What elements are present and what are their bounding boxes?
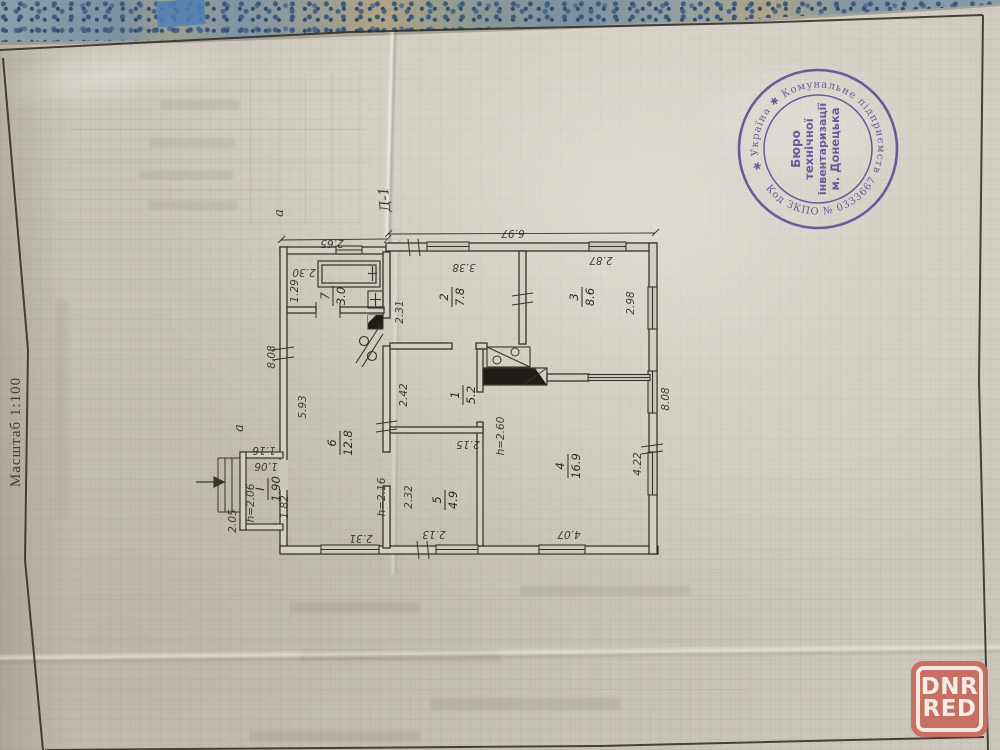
room-label: 416.9	[553, 453, 583, 479]
wall	[390, 343, 452, 349]
svg-text:2: 2	[437, 293, 451, 300]
dim-label: 4.22	[632, 452, 644, 476]
svg-text:1: 1	[448, 391, 462, 398]
bti-stamp: ✱ Україна ✱ Комунальне підприємство ✱ Ко…	[0, 0, 897, 228]
wall	[390, 427, 483, 433]
svg-text:3: 3	[567, 293, 581, 300]
window-icon	[321, 545, 379, 554]
dim-label: 2.31	[394, 300, 406, 323]
svg-text:✱ Україна ✱ Комунальне підприє: ✱ Україна ✱ Комунальне підприємство ✱	[0, 0, 886, 175]
wall	[519, 251, 526, 344]
dim-label: 2.42	[398, 383, 410, 407]
dim-label: 2.30	[292, 266, 316, 278]
room-label: 612.8	[325, 430, 355, 456]
dim-label: h=2.60	[495, 416, 507, 455]
dim-label: 2.15	[456, 438, 480, 450]
windows	[321, 242, 657, 554]
svg-text:5.2: 5.2	[464, 386, 478, 404]
dim-label: h=2.06	[245, 483, 257, 522]
door-swing	[356, 324, 383, 367]
wide-opening	[588, 375, 650, 381]
stamp-center-line: технічної	[802, 118, 816, 180]
dim-label: 1.82	[279, 495, 291, 519]
dim-label: 2.65	[320, 237, 344, 249]
svg-text:7: 7	[318, 292, 332, 300]
stamp-center-line: Бюро	[789, 130, 803, 168]
entrance-arrow-icon	[196, 477, 224, 487]
photo-of-document: Масштаб 1:100	[0, 0, 1000, 750]
dim-label: 2.98	[625, 291, 637, 315]
window-icon	[648, 287, 657, 329]
dim-label: 1.29	[289, 279, 301, 303]
dim-label: 1.16	[252, 444, 276, 456]
watermark-line2: RED	[921, 699, 979, 721]
room-label: 54.9	[430, 490, 460, 510]
dim-label: 4.07	[557, 528, 581, 540]
stove-icon	[368, 315, 383, 329]
svg-text:6: 6	[325, 439, 339, 446]
wall	[476, 343, 487, 349]
dim-label: 2.31	[349, 532, 372, 544]
stove-icon	[483, 368, 547, 385]
dim-label: 2.05	[227, 509, 239, 533]
dim-label: h=2.16	[376, 477, 388, 516]
svg-text:4.9: 4.9	[446, 491, 460, 509]
boiler-icon	[368, 291, 383, 308]
room-label: 15.2	[448, 385, 478, 405]
svg-text:16.9: 16.9	[569, 453, 583, 479]
svg-text:8.6: 8.6	[583, 288, 597, 306]
stove-hearth	[487, 347, 530, 367]
dim-label: 1.06	[254, 460, 278, 472]
window-icon	[648, 452, 657, 495]
bathtub-icon	[318, 261, 380, 287]
room-label: 38.6	[567, 287, 597, 307]
dim-label: 8.08	[266, 345, 278, 369]
window-icon	[539, 545, 585, 554]
dnr-red-watermark: DNR RED	[911, 661, 988, 737]
svg-text:4: 4	[553, 462, 567, 469]
floor-plan: 73.0 27.8 38.6 15.2 612.8 54.9 416.9 I1.…	[196, 186, 672, 559]
scale-label: Масштаб 1:100	[8, 377, 24, 487]
stamp-ring-top-text: ✱ Україна ✱ Комунальне підприємство ✱	[0, 0, 886, 175]
svg-text:3.0: 3.0	[334, 287, 348, 305]
dim-label: 2.87	[589, 254, 613, 266]
dim-label: 3.38	[452, 261, 476, 273]
svg-text:5: 5	[430, 496, 444, 503]
plan-mark: Д-1	[376, 186, 394, 213]
steps	[218, 458, 240, 512]
dim-label: 5.93	[297, 395, 309, 418]
document-content: Масштаб 1:100	[0, 0, 1000, 750]
stamp-center-line: м. Донецька	[828, 107, 842, 190]
wall	[383, 346, 390, 452]
annotation-a: а	[272, 209, 287, 217]
dim-label: 8.08	[660, 387, 672, 411]
window-icon	[436, 545, 478, 554]
room-label: 73.0	[318, 286, 348, 306]
dim-label: 2.13	[422, 528, 445, 540]
wall	[547, 374, 589, 381]
wall	[287, 307, 316, 313]
dim-label: 6.97	[501, 227, 525, 239]
room-label: 27.8	[437, 287, 467, 307]
window-icon	[427, 242, 469, 251]
svg-text:12.8: 12.8	[341, 430, 355, 456]
window-icon	[589, 242, 626, 251]
wall	[477, 349, 483, 392]
svg-text:7.8: 7.8	[453, 288, 467, 306]
annotation-a: а	[232, 424, 247, 432]
dim-label: 2.32	[403, 485, 415, 509]
